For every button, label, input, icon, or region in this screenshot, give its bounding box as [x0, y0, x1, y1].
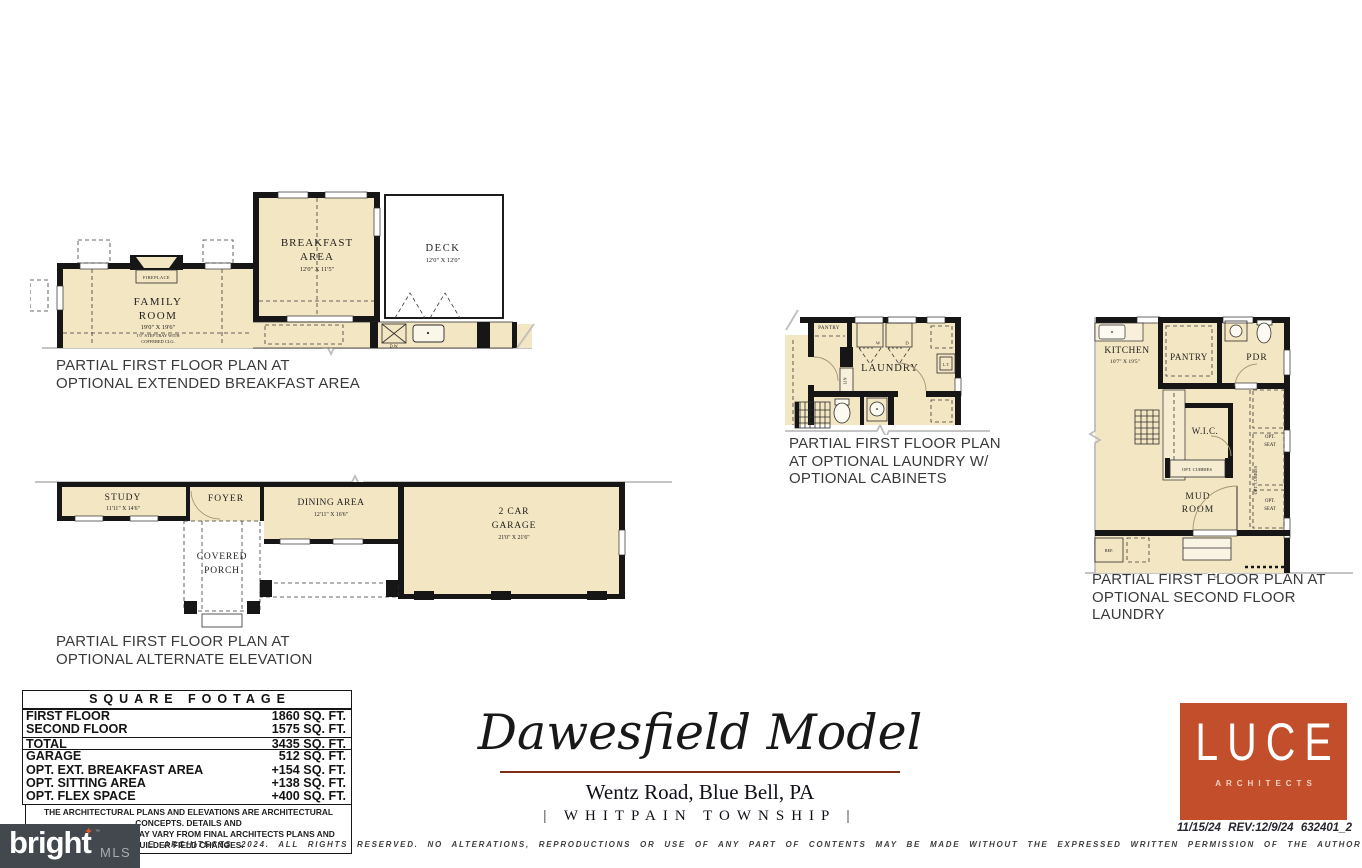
row-value: 1860 SQ. FT. [272, 710, 346, 723]
refrigerator: REF. [1095, 538, 1123, 562]
window-bay [30, 280, 48, 311]
plan-alternate-elevation: STUDY 11'11" X 14'6" FOYER DINING AREA 1… [30, 455, 680, 633]
opt-seat-bottom-1: OPT. [1265, 499, 1275, 504]
caption-line: AT OPTIONAL LAUNDRY W/ [789, 453, 1001, 471]
pdr-label: PDR [1246, 353, 1267, 363]
cubbies: OPT. CUBBIES [1170, 460, 1225, 477]
table-row: GARAGE 512 SQ. FT. [23, 750, 351, 763]
laundry-tub-label: L.T. [943, 363, 949, 367]
plan-second-floor-laundry: KITCHEN 10'7" X 19'5" PANTRY PDR W.I.C. … [1085, 290, 1355, 578]
linen-closet: LIN [840, 368, 853, 394]
family-room-dims: 19'0" X 19'6" [141, 324, 176, 331]
title-rule [500, 771, 900, 773]
fireplace: FIREPLACE [130, 255, 183, 283]
deck-label: DECK [426, 243, 461, 254]
luce-architects-logo: LUCE ARCHITECTS [1180, 703, 1347, 820]
table-row: OPT. FLEX SPACE +400 SQ. FT. [23, 790, 351, 803]
caption-line: OPTIONAL SECOND FLOOR LAUNDRY [1092, 589, 1362, 624]
mud-room-label-1: MUD [1185, 492, 1210, 502]
pdr-toilet [1257, 320, 1272, 343]
opt-seat-bottom-2: SEAT [1264, 507, 1276, 512]
row-value: 512 SQ. FT. [279, 750, 346, 763]
family-room-label-1: FAMILY [134, 296, 183, 308]
row-label: OPT. FLEX SPACE [26, 790, 136, 803]
window-bay [203, 240, 233, 263]
caption-alternate-elevation: PARTIAL FIRST FLOOR PLAN AT OPTIONAL ALT… [56, 633, 313, 668]
drawing-info-row: 11/15/24 REV:12/9/24 632401_2 [1177, 822, 1352, 834]
kitchen-counter [1095, 323, 1143, 341]
porch-label-1: COVERED [197, 552, 247, 562]
row-label: OPT. EXT. BREAKFAST AREA [26, 764, 203, 777]
family-room-note-1: 1'0" STEP TRAY WITH [136, 333, 180, 338]
washer-label: W [876, 341, 881, 346]
breakfast-label-2: AREA [300, 251, 334, 263]
linen-label: LIN [843, 378, 848, 385]
row-value: 1575 SQ. FT. [272, 723, 346, 736]
study-label: STUDY [105, 493, 142, 503]
breakfast-dims: 12'0" X 11'5" [300, 266, 335, 273]
row-label: SECOND FLOOR [26, 723, 127, 736]
mls-label: MLS [100, 845, 131, 860]
garage-label-2: GARAGE [492, 521, 536, 531]
township-line: | WHITPAIN TOWNSHIP | [420, 808, 980, 825]
dining-dims: 12'11" X 16'6" [314, 512, 348, 518]
dishwasher-label: D.W. [390, 344, 399, 349]
star-icon: ✦ [84, 825, 93, 838]
row-value: 3435 SQ. FT. [272, 738, 346, 749]
row-value: +400 SQ. FT. [271, 790, 346, 803]
floor-plan-sheet: { "colors": { "brand_red": "#c24e2b", "t… [0, 0, 1362, 868]
caption-line: PARTIAL FIRST FLOOR PLAN AT [56, 357, 360, 375]
caption-line: OPTIONAL CABINETS [789, 470, 1001, 488]
foyer-label: FOYER [208, 494, 244, 504]
trademark-symbol: ™ [95, 829, 100, 835]
caption-line: OPTIONAL ALTERNATE ELEVATION [56, 651, 313, 669]
address-line: Wentz Road, Blue Bell, PA [420, 780, 980, 805]
opt-cubbies-vertical: OPT. CUBBIES [1253, 465, 1258, 494]
cubbies-label: OPT. CUBBIES [1182, 467, 1212, 472]
model-title: Dawesfield Model [420, 704, 980, 761]
dining-label: DINING AREA [298, 498, 365, 508]
garage-label-1: 2 CAR [499, 507, 530, 517]
family-room-label-2: ROOM [139, 310, 178, 322]
row-label: TOTAL [26, 738, 67, 749]
opt-seat-top-1: OPT. [1265, 435, 1275, 440]
deck-dims: 12'0" X 12'0" [426, 257, 461, 264]
kitchen-label: KITCHEN [1104, 346, 1149, 356]
toilet [834, 399, 850, 423]
square-footage-title: SQUARE FOOTAGE [23, 691, 351, 710]
laundry-label: LAUNDRY [861, 363, 919, 374]
study-dims: 11'11" X 14'6" [106, 506, 140, 512]
bench [1183, 538, 1231, 560]
table-row: SECOND FLOOR 1575 SQ. FT. [23, 723, 351, 736]
row-value: +138 SQ. FT. [271, 777, 346, 790]
family-room-note-2: COFFERED CLG. [141, 339, 174, 344]
table-row: OPT. EXT. BREAKFAST AREA +154 SQ. FT. [23, 764, 351, 777]
caption-line: OPTIONAL EXTENDED BREAKFAST AREA [56, 375, 360, 393]
drawing-date: 11/15/24 [1177, 822, 1221, 834]
cut-line [785, 425, 990, 435]
row-value: +154 SQ. FT. [271, 764, 346, 777]
job-number: 632401_2 [1301, 822, 1352, 834]
opt-seat-top-2: SEAT [1264, 443, 1276, 448]
caption-line: PARTIAL FIRST FLOOR PLAN AT [1092, 571, 1362, 589]
laundry-tub: L.T. [937, 354, 955, 373]
drawing-revision: REV:12/9/24 [1228, 822, 1293, 834]
table-row: FIRST FLOOR 1860 SQ. FT. [23, 710, 351, 723]
pantry-label: PANTRY [1170, 352, 1208, 362]
caption-second-floor-laundry: PARTIAL FIRST FLOOR PLAN AT OPTIONAL SEC… [1092, 571, 1362, 624]
walkway [260, 583, 398, 597]
kitchen-dims: 10'7" X 19'5" [1110, 359, 1140, 365]
table-row-total: TOTAL 3435 SQ. FT. [23, 737, 351, 750]
bright-mls-watermark: bright ✦ ™ MLS [0, 824, 140, 868]
bright-wordmark: bright [9, 825, 91, 861]
caption-extended-breakfast: PARTIAL FIRST FLOOR PLAN AT OPTIONAL EXT… [56, 357, 360, 392]
window-bay [78, 240, 110, 263]
row-label: FIRST FLOOR [26, 710, 110, 723]
logo-wordmark: LUCE [1180, 712, 1347, 772]
garage-dims: 21'0" X 21'6" [498, 535, 529, 541]
caption-optional-laundry: PARTIAL FIRST FLOOR PLAN AT OPTIONAL LAU… [789, 435, 1001, 488]
breakfast-label-1: BREAKFAST [281, 237, 353, 249]
row-label: OPT. SITTING AREA [26, 777, 146, 790]
porch-label-2: PORCH [204, 566, 240, 576]
fireplace-label: FIREPLACE [143, 275, 170, 280]
logo-subtitle: ARCHITECTS [1180, 779, 1347, 788]
square-footage-table: SQUARE FOOTAGE FIRST FLOOR 1860 SQ. FT. … [22, 690, 352, 805]
copyright-notice: E ARCHITECTS 2024. ALL RIGHTS RESERVED. … [148, 840, 1360, 849]
kitchen-sink [413, 325, 444, 342]
caption-line: PARTIAL FIRST FLOOR PLAN [789, 435, 1001, 453]
ref-label: REF. [1105, 548, 1114, 553]
plan-optional-laundry: PANTRY W D LIN LAUNDRY L.T. [785, 290, 990, 435]
caption-line: PARTIAL FIRST FLOOR PLAN AT [56, 633, 313, 651]
wic-label: W.I.C. [1192, 426, 1218, 436]
pantry-label: PANTRY [818, 326, 840, 331]
table-row: OPT. SITTING AREA +138 SQ. FT. [23, 777, 351, 790]
plan-extended-breakfast: FIREPLACE D.W. FAMILY ROOM 19'0" X 19'6"… [30, 183, 565, 359]
row-label: GARAGE [26, 750, 81, 763]
